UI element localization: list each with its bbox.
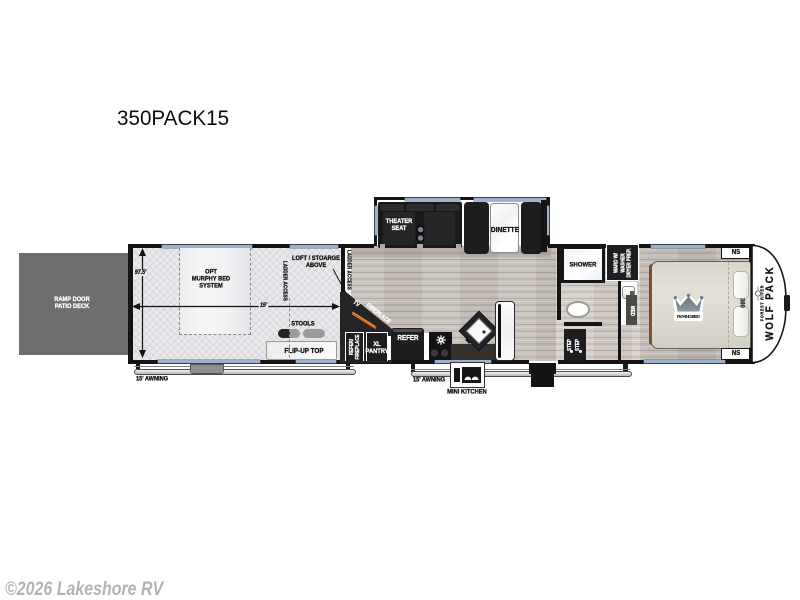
svg-text:RV KING BED: RV KING BED: [677, 313, 701, 319]
